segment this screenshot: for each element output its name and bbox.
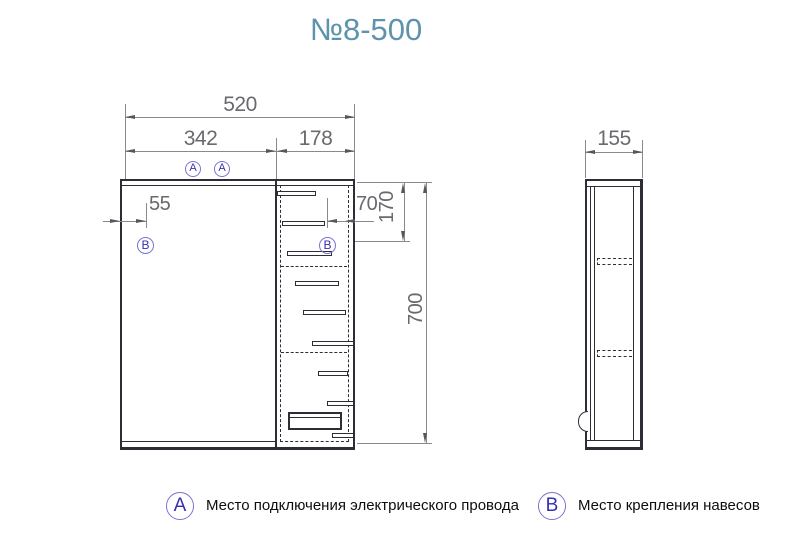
dim-label-height: 700: [405, 287, 427, 331]
shelf-edge: [295, 281, 339, 286]
shelf-edge: [327, 401, 354, 406]
dim-line-520: [125, 117, 355, 118]
side-door-line: [590, 187, 591, 440]
arrowhead: [423, 183, 427, 193]
arrowhead: [585, 150, 595, 154]
dim-label-cabinet-width: 178: [276, 128, 355, 150]
extension-line: [327, 198, 328, 228]
bottom-shelf-box-line: [290, 417, 340, 418]
dim-line-342-178: [125, 151, 355, 152]
shelf-edge: [303, 310, 346, 315]
page-title: №8-500: [266, 13, 466, 47]
arrowhead: [327, 219, 337, 223]
mirror-bottom-shelf-line: [122, 441, 275, 442]
shelf-edge: [332, 433, 354, 438]
legend-marker-a: A: [166, 492, 194, 520]
side-bottom-inner-line: [587, 440, 641, 441]
side-shelf-hidden-line: [597, 258, 632, 259]
arrowhead: [401, 183, 405, 193]
arrowhead: [136, 219, 146, 223]
marker-a-wire-right: A: [214, 161, 230, 177]
shelf-edge: [318, 371, 348, 376]
shelf-edge: [282, 221, 325, 226]
marker-a-wire-left: A: [185, 161, 201, 177]
technical-drawing-page: №8-500 520 342 178 A A: [0, 0, 800, 554]
arrowhead: [345, 219, 355, 223]
legend-text-a: Место подключения электрического провода: [206, 492, 519, 520]
mirror-cabinet-divider: [275, 180, 277, 449]
side-shelf-hidden-cap: [597, 258, 598, 265]
shelf-edge: [312, 341, 354, 346]
extension-line: [355, 241, 410, 242]
cabinet-shelf-hidden-line: [281, 352, 347, 353]
legend-text-b: Место крепления навесов: [578, 492, 760, 520]
dim-label-total-width: 520: [125, 94, 355, 116]
cabinet-shelf-hidden-line: [281, 266, 347, 267]
side-shelf-hidden-cap: [597, 350, 598, 357]
arrowhead: [110, 219, 120, 223]
legend-marker-b: B: [538, 492, 566, 520]
side-shelf-hidden-line: [597, 264, 632, 265]
side-shelf-hidden-line: [597, 356, 632, 357]
door-handle: [578, 411, 588, 432]
bottom-shelf-box: [288, 412, 342, 430]
dim-label-bracket-top-offset: 170: [376, 186, 398, 228]
marker-b-bracket-right: B: [319, 237, 336, 254]
dim-label-bracket-left-offset: 55: [149, 193, 170, 215]
dim-label-mirror-width: 342: [125, 128, 276, 150]
arrowhead: [423, 433, 427, 443]
dim-label-depth: 155: [585, 128, 643, 150]
side-door-line: [594, 187, 595, 440]
extension-line: [146, 203, 147, 228]
dim-label-bracket-right-offset: 70: [356, 193, 377, 215]
side-shelf-hidden-line: [597, 350, 632, 351]
shelf-edge: [277, 191, 316, 196]
extension-line: [357, 443, 432, 444]
arrowhead: [401, 231, 405, 241]
arrowhead: [633, 150, 643, 154]
side-back-inner-line: [633, 187, 634, 440]
marker-b-bracket-left: B: [137, 237, 154, 254]
extension-line: [357, 182, 432, 183]
